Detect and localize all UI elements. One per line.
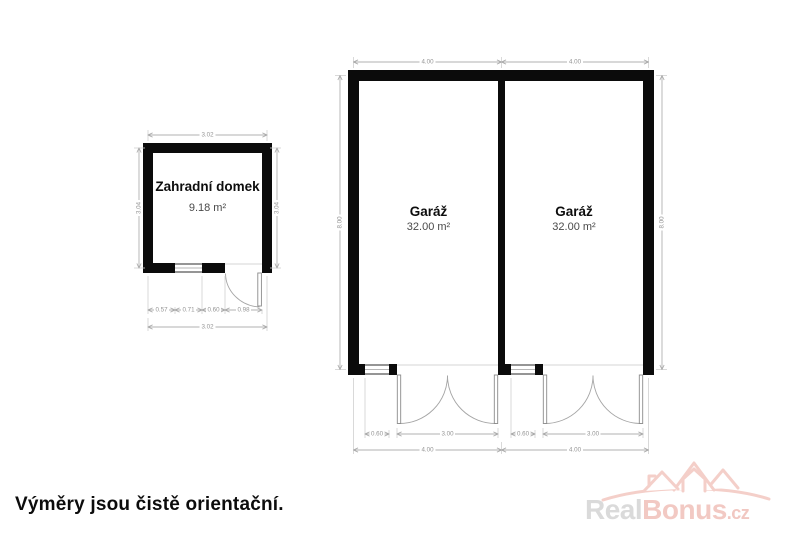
garden-house-plan: 3.02 3.04 3.04: [134, 130, 281, 331]
floor-plan-page: 3.02 3.04 3.04: [0, 0, 800, 533]
dim-label-right-total: 4.00: [569, 447, 582, 454]
dim-label-right: 3.04: [274, 201, 281, 214]
garage-left-area: 32.00 m²: [407, 221, 451, 233]
dim-label-seg3: 0.60: [207, 307, 220, 314]
wordmark-cz: .cz: [727, 503, 750, 523]
door-swing-arc: [226, 274, 260, 308]
garage-left-window: [365, 364, 389, 375]
dim-label-top-left: 4.00: [421, 59, 434, 66]
dim-label-right-window: 0.60: [517, 431, 530, 438]
dim-label-seg1: 0.57: [155, 307, 168, 314]
garage-plan: 4.00 4.00 8.00 8.00: [335, 57, 667, 454]
dim-label-right: 8.00: [659, 216, 666, 229]
dim-label-left-door: 3.00: [441, 431, 454, 438]
dim-label-seg2: 0.71: [182, 307, 195, 314]
garden-house-name: Zahradní domek: [155, 179, 260, 194]
garage-right-window: [511, 364, 535, 375]
dim-label-left-total: 4.00: [421, 447, 434, 454]
door-swing-arc: [399, 376, 448, 424]
wordmark-real: Real: [585, 494, 642, 525]
dim-label-bottom-total: 3.02: [201, 324, 214, 331]
realbonus-wordmark: RealBonus.cz: [585, 496, 749, 524]
door-swing-arc: [593, 376, 641, 424]
dim-label-top: 3.02: [201, 132, 214, 139]
door-leaf: [397, 375, 400, 424]
garden-house-window: [175, 263, 202, 273]
floor-plan-drawing: 3.02 3.04 3.04: [0, 0, 800, 533]
door-swing-arc: [448, 376, 497, 424]
garage-right-door: [543, 364, 643, 424]
door-leaf: [258, 273, 262, 306]
door-leaf: [639, 375, 642, 424]
dim-label-top-right: 4.00: [569, 59, 582, 66]
garden-house-area: 9.18 m²: [189, 202, 227, 214]
door-leaf: [543, 375, 546, 424]
wordmark-bonus: Bonus: [642, 494, 727, 525]
dim-label-seg4: 0.98: [237, 307, 250, 314]
garage-right-name: Garáž: [555, 204, 593, 219]
garage-left-name: Garáž: [410, 204, 448, 219]
dim-label-left: 8.00: [337, 216, 344, 229]
garage-right-area: 32.00 m²: [552, 221, 596, 233]
dim-label-left: 3.04: [136, 201, 143, 214]
door-swing-arc: [545, 376, 593, 424]
disclaimer-note: Výměry jsou čistě orientační.: [15, 494, 284, 516]
dim-label-right-door: 3.00: [587, 431, 600, 438]
garage-left-door: [397, 364, 498, 424]
dim-label-left-window: 0.60: [371, 431, 384, 438]
door-leaf: [494, 375, 497, 424]
garden-house-door: [225, 263, 262, 307]
